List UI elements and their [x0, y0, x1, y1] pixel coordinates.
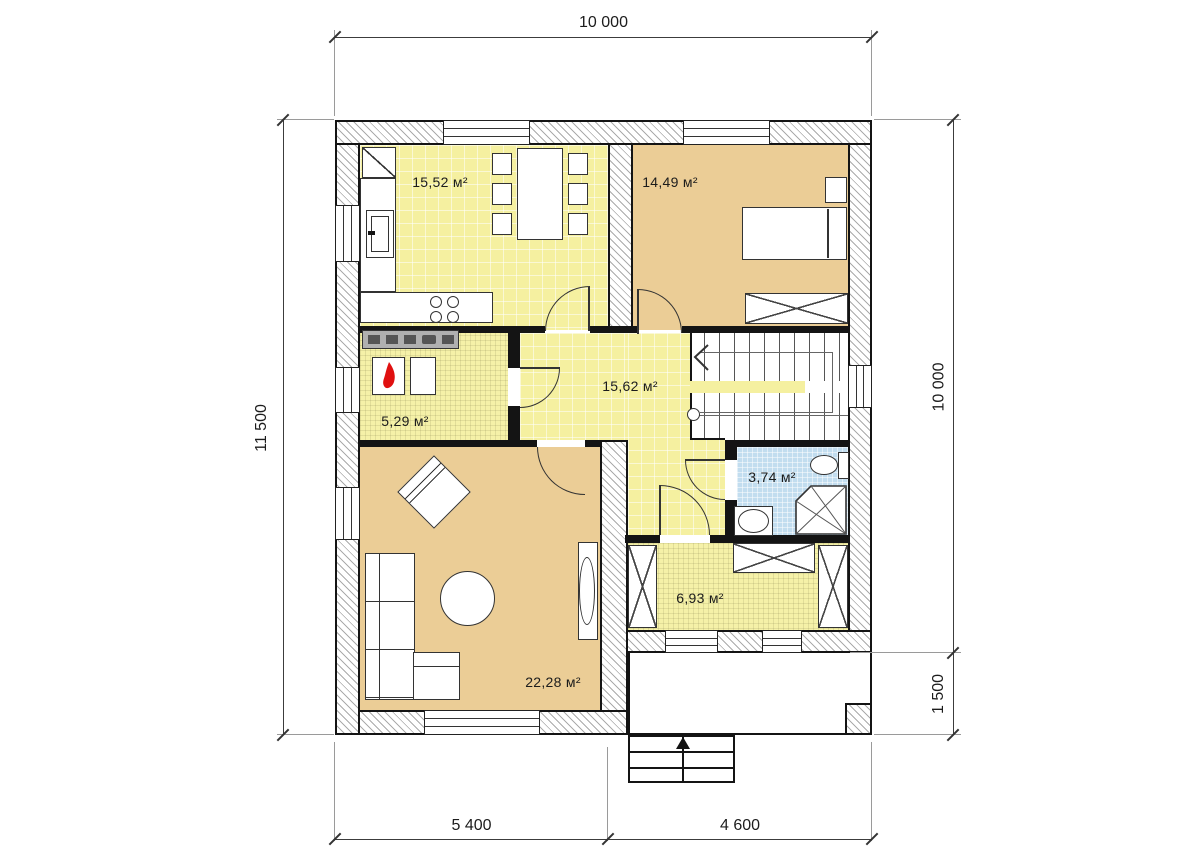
sofa-corner-vertical [365, 553, 415, 700]
label-vestibule-area: 6,93 м² [645, 589, 755, 607]
stove-burner [447, 311, 459, 323]
stair-treads-upper [690, 333, 848, 381]
chair [492, 213, 512, 235]
label-kitchen-area: 15,52 м² [380, 173, 500, 191]
window-kitchen-west [335, 205, 360, 262]
window-vestibule-south [762, 630, 802, 653]
stair-edge-bottom [690, 438, 725, 440]
dimension-label-right-main: 10 000 [926, 120, 952, 653]
wash-basin-bowl [738, 509, 769, 533]
entry-arrow-up-icon [676, 737, 690, 749]
equipment-block [404, 335, 416, 344]
entrance-door-opening [665, 630, 718, 653]
door-leaf-boiler [520, 367, 560, 369]
extension-line [277, 119, 334, 120]
dimension-text: 11 500 [253, 404, 271, 452]
porch-pier [845, 703, 872, 735]
wall-bottom-right [600, 630, 872, 653]
label-bathroom-area: 3,74 м² [722, 468, 822, 486]
fridge-handle [368, 231, 375, 235]
wall-boiler-east-upper [508, 330, 520, 368]
stair-stringer-right [832, 352, 833, 413]
stair-direction-chevron-icon [692, 343, 712, 373]
chair [492, 153, 512, 175]
boiler-unit [372, 357, 405, 395]
stair-newel-post [687, 408, 700, 421]
kitchen-counter-bottom [360, 292, 493, 323]
shower-tray [795, 485, 847, 535]
stove-burner [430, 311, 442, 323]
dimension-label-bottom-left: 5 400 [335, 815, 608, 837]
coffee-table [440, 571, 495, 626]
label-bedroom-area: 14,49 м² [610, 173, 730, 191]
bed [742, 207, 847, 260]
dimension-label-bottom-right: 4 600 [608, 815, 872, 837]
door-leaf-kitchen [588, 287, 590, 331]
chair [568, 213, 588, 235]
dimension-text: 1 500 [930, 674, 948, 714]
stair-rail-line [694, 415, 848, 416]
toilet-tank [838, 452, 849, 479]
floor-plan-canvas: 15,52 м² 14,49 м² 5,29 м² 15,62 м² 3,74 … [0, 0, 1200, 864]
label-living-area: 22,28 м² [493, 673, 613, 691]
label-boiler-area: 5,29 м² [350, 412, 460, 430]
window-living-south [424, 710, 540, 735]
dining-table [517, 148, 563, 240]
stove-burner [447, 296, 459, 308]
window-bedroom-north [683, 120, 770, 145]
dimension-line-right-main [953, 120, 954, 653]
window-living-west [335, 487, 360, 540]
flame-icon [374, 359, 404, 393]
wall-vestibule-north-left [625, 535, 660, 543]
wall-top [335, 120, 872, 145]
wall-bedroom-south [682, 326, 848, 333]
stair-treads-lower [690, 393, 848, 440]
wall-living-north [360, 440, 537, 447]
dimension-line-top [335, 37, 872, 38]
wardrobe-bedroom [745, 293, 848, 324]
sofa-corner-horizontal [413, 652, 460, 700]
wall-bathroom-west-upper [725, 447, 737, 460]
boiler-tank [410, 357, 436, 395]
stair-stringer-bottom [700, 412, 833, 413]
equipment-block [368, 335, 380, 344]
porch [628, 653, 872, 735]
extension-line [334, 30, 335, 116]
dimension-line-left [283, 120, 284, 735]
window-kitchen-north [443, 120, 530, 145]
wall-living-east [600, 440, 628, 712]
stove-burner [430, 296, 442, 308]
tv-screen [579, 557, 595, 625]
wall-hall-north-stub [590, 326, 638, 333]
dimension-text: 10 000 [930, 362, 948, 411]
dimension-line-right-porch [953, 653, 954, 735]
extension-line [871, 30, 872, 116]
wardrobe-vestibule-right [818, 545, 848, 628]
stair-gap [690, 381, 805, 393]
bed-pillow-line [827, 209, 829, 258]
label-hall-area: 15,62 м² [570, 377, 690, 395]
window-boiler-west [335, 367, 360, 413]
window-stairs-east [848, 365, 872, 408]
dimension-label-right-porch: 1 500 [926, 653, 952, 735]
extension-line [277, 734, 334, 735]
equipment-block [422, 335, 436, 344]
wall-kitchen-bedroom [608, 143, 633, 333]
stair-stringer-top [700, 352, 833, 353]
equipment-block [442, 335, 454, 344]
nightstand [825, 177, 847, 203]
wall-bathroom-north [725, 440, 848, 447]
dimension-line-bottom [335, 839, 872, 840]
door-leaf-vestibule [659, 485, 661, 535]
wardrobe-vestibule-left [628, 545, 657, 628]
equipment-block [386, 335, 398, 344]
door-leaf-bathroom [685, 459, 725, 461]
dimension-label-left: 11 500 [243, 120, 281, 735]
dimension-label-top: 10 000 [335, 12, 872, 34]
door-leaf-bedroom [637, 289, 639, 334]
wall-vestibule-north-right [710, 535, 848, 543]
wall-living-north-stub [585, 440, 600, 447]
chair [568, 153, 588, 175]
chair [568, 183, 588, 205]
wardrobe-vestibule-top [733, 543, 815, 573]
wall-boiler-east-lower [508, 406, 520, 440]
